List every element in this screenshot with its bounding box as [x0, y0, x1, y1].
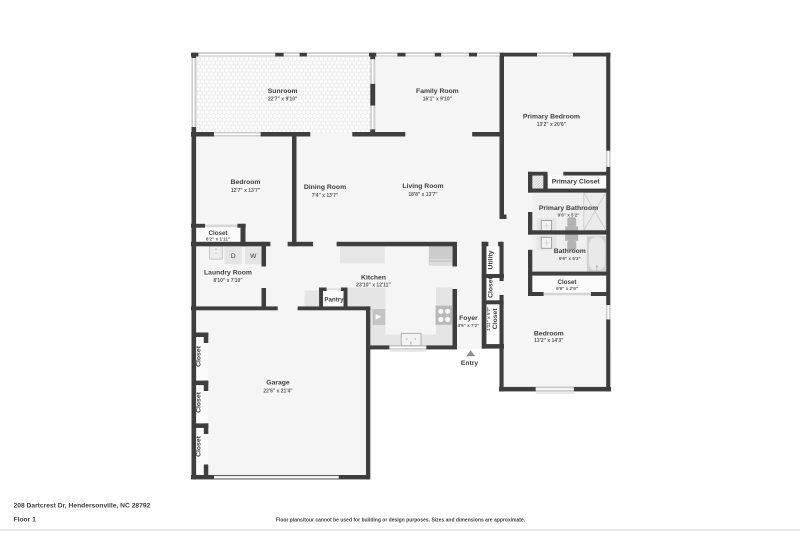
svg-text:Utility: Utility — [487, 250, 494, 269]
svg-text:Living Room: Living Room — [402, 183, 443, 190]
svg-text:9'6" x 2'9": 9'6" x 2'9" — [556, 286, 578, 291]
svg-text:Sunroom: Sunroom — [268, 88, 298, 95]
svg-text:Primary Closet: Primary Closet — [552, 179, 601, 186]
svg-text:22'7" x 9'10": 22'7" x 9'10" — [268, 96, 298, 102]
svg-text:Garage: Garage — [266, 380, 290, 387]
svg-text:Family Room: Family Room — [416, 88, 459, 95]
svg-text:Foyer: Foyer — [459, 315, 478, 322]
svg-text:Closet: Closet — [195, 345, 202, 367]
svg-text:Bedroom: Bedroom — [534, 331, 564, 338]
svg-text:Pantry: Pantry — [324, 296, 344, 303]
svg-text:16'1" x 9'10": 16'1" x 9'10" — [423, 96, 453, 102]
svg-text:Closet: Closet — [488, 276, 495, 298]
svg-text:D: D — [231, 253, 236, 260]
svg-text:208 Dartcrest Dr, Hendersonvil: 208 Dartcrest Dr, Hendersonville, NC 287… — [14, 503, 151, 510]
svg-text:Closet: Closet — [195, 391, 202, 413]
svg-text:23'10" x 12'11": 23'10" x 12'11" — [356, 283, 391, 289]
svg-text:3'5" x 7'2": 3'5" x 7'2" — [457, 323, 479, 328]
svg-text:Closet: Closet — [492, 308, 499, 330]
svg-text:12'7" x 13'7": 12'7" x 13'7" — [231, 188, 261, 194]
svg-text:Floor plans/tour cannot be use: Floor plans/tour cannot be used for buil… — [276, 518, 526, 524]
svg-text:Kitchen: Kitchen — [361, 275, 386, 282]
svg-text:Dining Room: Dining Room — [304, 184, 346, 191]
svg-text:Closet: Closet — [195, 435, 202, 457]
svg-text:Entry: Entry — [461, 360, 479, 367]
svg-text:W: W — [250, 253, 257, 260]
svg-text:Primary Bathroom: Primary Bathroom — [539, 205, 598, 212]
svg-text:Primary Bedroom: Primary Bedroom — [523, 114, 580, 121]
svg-text:Laundry Room: Laundry Room — [204, 270, 252, 277]
svg-text:9'6" x 5'2": 9'6" x 5'2" — [558, 212, 580, 217]
svg-text:7'4" x 13'7": 7'4" x 13'7" — [312, 193, 339, 199]
svg-text:Bathroom: Bathroom — [554, 248, 586, 255]
svg-text:22'6" x 21'4": 22'6" x 21'4" — [263, 388, 293, 394]
svg-text:18'8" x 13'7": 18'8" x 13'7" — [408, 192, 438, 198]
svg-text:13'2" x 20'6": 13'2" x 20'6" — [537, 122, 567, 128]
svg-text:1'11" x 5'7": 1'11" x 5'7" — [486, 307, 491, 331]
svg-text:13'2" x 14'3": 13'2" x 14'3" — [534, 338, 564, 344]
svg-text:Bedroom: Bedroom — [231, 179, 261, 186]
svg-text:8'10" x 7'10": 8'10" x 7'10" — [213, 278, 243, 284]
svg-text:6'2" x 1'11": 6'2" x 1'11" — [206, 237, 230, 242]
svg-text:9'6" x 5'2": 9'6" x 5'2" — [559, 256, 581, 261]
svg-text:Floor 1: Floor 1 — [14, 516, 37, 523]
